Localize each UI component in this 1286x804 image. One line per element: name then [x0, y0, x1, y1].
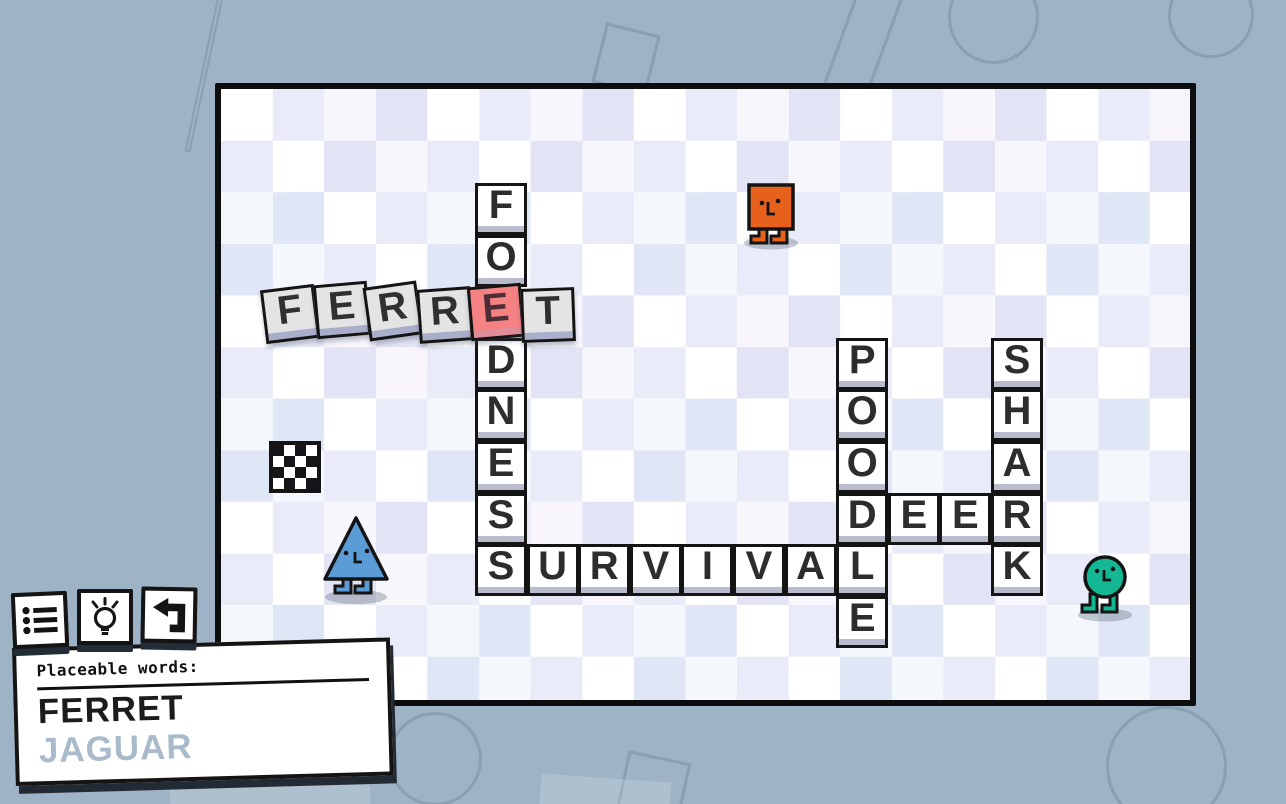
- letter-tile[interactable]: E: [888, 493, 940, 545]
- bg-ellipse: [948, 0, 1039, 64]
- list-icon: [20, 601, 60, 639]
- letter-tile[interactable]: U: [527, 544, 579, 596]
- body: [325, 518, 387, 579]
- letter-tile[interactable]: V: [733, 544, 785, 596]
- letter-tile[interactable]: R: [578, 544, 630, 596]
- letter-tile[interactable]: K: [991, 544, 1043, 596]
- bg-circle-bottom-right: [1106, 706, 1227, 804]
- right-eye: [776, 199, 781, 204]
- letter-tile[interactable]: E: [475, 441, 527, 493]
- letter-tile[interactable]: N: [475, 389, 527, 441]
- drag-tile[interactable]: R: [416, 286, 474, 344]
- letter-tile[interactable]: A: [785, 544, 837, 596]
- drag-tile-conflict[interactable]: E: [467, 283, 526, 342]
- letter-tile[interactable]: O: [836, 389, 888, 441]
- panel-title: Placeable words:: [36, 652, 368, 680]
- lightbulb-icon: [86, 597, 124, 637]
- body: [749, 185, 793, 229]
- letter-tile[interactable]: O: [836, 441, 888, 493]
- letter-tile[interactable]: O: [475, 235, 527, 287]
- square-character: [735, 180, 805, 252]
- letter-tile[interactable]: P: [836, 338, 888, 390]
- circle-character: [1075, 548, 1145, 628]
- triangle-character: [310, 505, 402, 610]
- letter-tile[interactable]: S: [475, 493, 527, 545]
- bg-circle-top-right: [1168, 0, 1254, 58]
- left-eye: [1095, 569, 1099, 573]
- left-eye: [760, 201, 765, 206]
- letter-tile[interactable]: D: [836, 493, 888, 545]
- left-leg: [1082, 594, 1097, 612]
- hint-button[interactable]: [77, 589, 133, 645]
- game-stage: FODNESSSURVIVALPOODLEDEERSHARKFERRET: [0, 0, 1286, 804]
- drag-tile[interactable]: T: [520, 287, 576, 343]
- word-list-button[interactable]: [11, 591, 69, 649]
- letter-tile[interactable]: A: [991, 441, 1043, 493]
- letter-tile[interactable]: S: [991, 338, 1043, 390]
- left-eye: [344, 551, 349, 556]
- right-eye: [1111, 567, 1115, 571]
- letter-tile[interactable]: E: [836, 596, 888, 648]
- undo-arrow-icon: [150, 596, 189, 635]
- letter-tile[interactable]: L: [836, 544, 888, 596]
- right-eye: [365, 549, 370, 554]
- placeable-words-panel: Placeable words: FERRET JAGUAR: [12, 637, 394, 786]
- drag-tile[interactable]: F: [260, 284, 320, 344]
- letter-tile[interactable]: H: [991, 389, 1043, 441]
- letter-tile[interactable]: F: [475, 183, 527, 235]
- puzzle-board: [215, 83, 1196, 706]
- letter-tile[interactable]: S: [475, 544, 527, 596]
- bg-circle-bottom: [388, 712, 482, 804]
- letter-tile[interactable]: R: [991, 493, 1043, 545]
- letter-tile[interactable]: E: [939, 493, 991, 545]
- letter-tile[interactable]: I: [681, 544, 733, 596]
- letter-tile[interactable]: D: [475, 338, 527, 390]
- checkered-flag-tile: [269, 441, 321, 493]
- drag-tile[interactable]: R: [363, 281, 424, 342]
- placeable-word-jaguar[interactable]: JAGUAR: [38, 722, 371, 770]
- undo-button[interactable]: [141, 587, 198, 644]
- letter-tile[interactable]: V: [630, 544, 682, 596]
